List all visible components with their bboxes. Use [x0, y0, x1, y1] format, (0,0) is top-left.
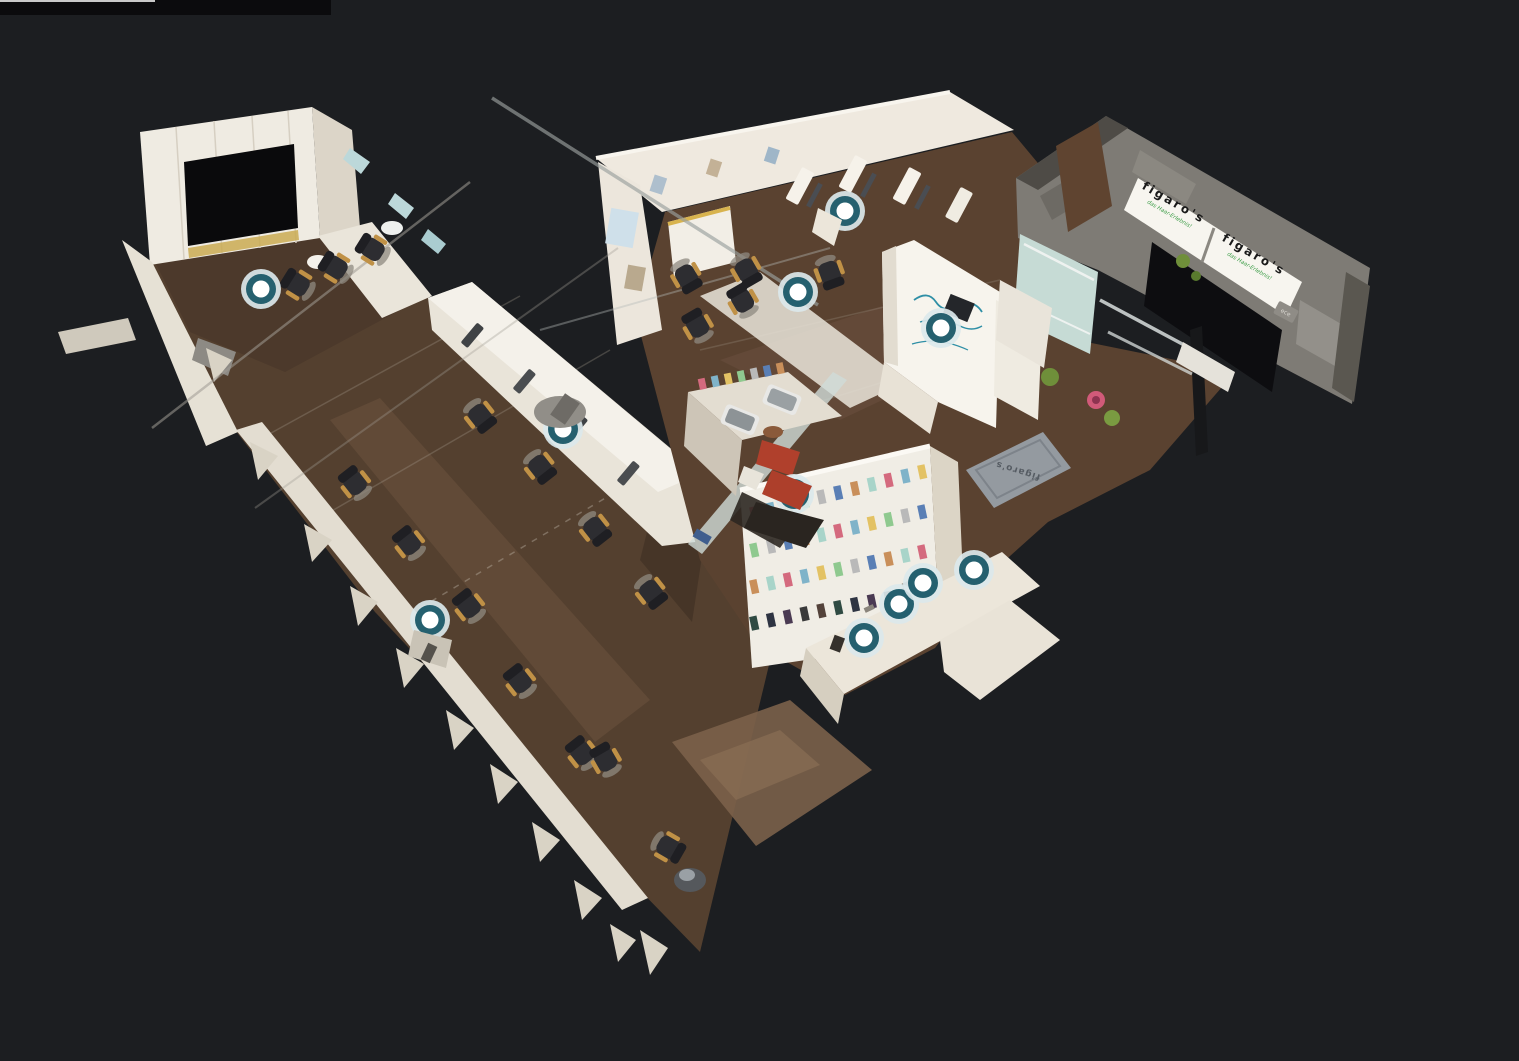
plant: [1176, 254, 1190, 268]
nav-point-marker[interactable]: [954, 550, 994, 590]
nav-point-marker[interactable]: [903, 563, 943, 603]
screenshot-artifact-line: [0, 0, 155, 2]
dollhouse-scene[interactable]: figaro's das Haar-Erlebnis! figaro's das…: [0, 0, 1519, 1061]
nav-point-marker[interactable]: [844, 618, 884, 658]
plant: [1104, 410, 1120, 426]
nav-point-marker[interactable]: [778, 272, 818, 312]
nav-point-marker[interactable]: [921, 308, 961, 348]
tour-3d-viewport[interactable]: figaro's das Haar-Erlebnis! figaro's das…: [0, 0, 1519, 1061]
nav-point-marker[interactable]: [241, 269, 281, 309]
screenshot-artifact-bar: [0, 0, 331, 15]
plant: [1191, 271, 1201, 281]
plant: [1041, 368, 1059, 386]
